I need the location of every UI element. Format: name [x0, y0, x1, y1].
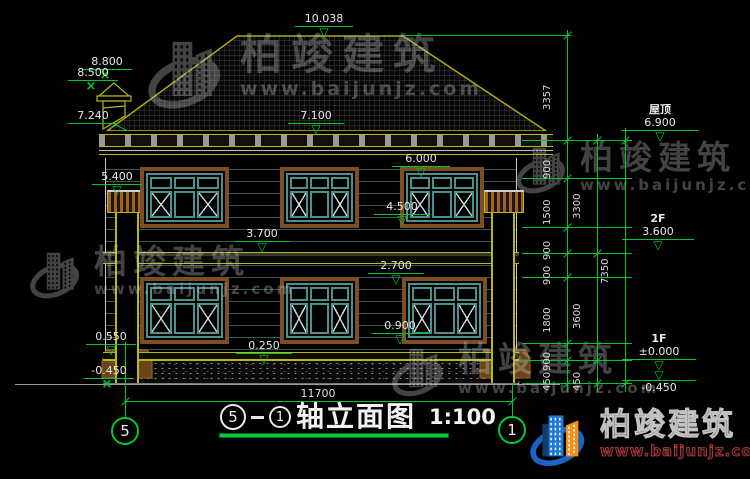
title-scale: 1:100 [429, 405, 496, 429]
elevation-value: 8.500 [68, 66, 118, 80]
level-link-line [403, 35, 571, 36]
dim-value: 1500 [542, 200, 553, 225]
elevation-marker: ▽ -0.450 [622, 370, 696, 395]
elevation-value: 4.500 [374, 200, 430, 214]
dim-value: 450 [542, 372, 553, 391]
dim-value: 900 [542, 352, 553, 371]
watermark: 柏竣建筑 www.baijunjz.com [146, 32, 482, 114]
dim-value: 450 [572, 372, 583, 391]
watermark-logo-icon [392, 342, 450, 400]
elevation-marker: 7.100 ▽ [288, 109, 344, 134]
elevation-marker: 0.550 ▽ [86, 330, 136, 355]
elevation-marker: 4.500 ▽ [374, 200, 430, 225]
elevation-marker: 屋顶 6.900 ▽ [622, 103, 698, 141]
elevation-marker: 2.700 ▽ [368, 259, 424, 284]
dim-value: 7350 [600, 259, 611, 284]
level-triangle-icon: ▽ [86, 345, 136, 355]
brand-name: 柏竣建筑 [600, 408, 750, 442]
dim-value: 3357 [542, 85, 553, 110]
elevation-marker: 10.038 ▽ [295, 12, 353, 37]
dim-value: 900 [542, 266, 553, 285]
elevation-marker: 7.240 [68, 109, 118, 124]
watermark-logo-icon [30, 244, 86, 304]
title-axis-circle-start: 5 [220, 404, 246, 430]
level-name: 2F [622, 212, 694, 225]
elevation-marker: 6.000 ▽ [392, 152, 450, 177]
elevation-value: 10.038 [295, 12, 353, 26]
eave-dentils [99, 135, 553, 147]
elevation-value: 7.240 [68, 109, 118, 123]
watermark-brand: 柏竣建筑 [580, 140, 750, 176]
elevation-value: -0.450 [84, 364, 134, 378]
level-link-line [522, 253, 632, 254]
cross-icon: × [68, 81, 118, 92]
level-link-line [522, 360, 632, 361]
level-triangle-icon: ▽ [368, 274, 424, 284]
level-name: 1F [622, 332, 696, 345]
dim-value: 900 [542, 160, 553, 179]
elevation-value: 2.700 [368, 259, 424, 273]
elevation-drawing-canvas: 柏竣建筑 www.baijunjz.com 柏竣建筑 www.baijunjz.… [0, 0, 750, 479]
level-triangle-icon: ▽ [622, 131, 698, 141]
dim-value: 1800 [542, 308, 553, 333]
watermark: 柏竣建筑 www.baijunjz.com [392, 342, 659, 400]
elevation-marker: -0.450 × [84, 364, 134, 390]
watermark-logo-icon [146, 32, 232, 114]
axis-bubble-1: 1 [498, 416, 526, 444]
elevation-marker: 8.500 × [68, 66, 118, 92]
watermark-site: www.baijunjz.com [240, 78, 482, 100]
title-text: 轴立面图 [296, 402, 416, 432]
elevation-value: 6.000 [392, 152, 450, 166]
elevation-marker: 0.900 ▽ [372, 319, 428, 344]
eave-line [99, 151, 553, 155]
elevation-value: -0.450 [622, 381, 696, 395]
level-link-line [522, 178, 632, 179]
level-triangle-icon: ▽ [392, 167, 450, 177]
brand-logo: 柏竣建筑 www.baijunjz.com [528, 408, 750, 470]
dim-value: 900 [542, 241, 553, 260]
window-2f-1 [140, 167, 229, 228]
axis-bubble-5: 5 [111, 417, 139, 445]
elevation-marker: 5.400 ▽ [92, 170, 142, 195]
window-2f-2 [280, 167, 359, 228]
title-dash [251, 416, 264, 419]
level-line [68, 123, 118, 124]
brand-site: www.baijunjz.com [600, 442, 750, 460]
level-triangle-icon: ▽ [295, 27, 353, 37]
dim-chain-line [567, 30, 568, 392]
cross-icon: × [84, 379, 134, 390]
drawing-title: 5 1 轴立面图 1:100 [220, 402, 496, 432]
level-link-line [522, 140, 632, 141]
level-triangle-icon: ▽ [92, 185, 142, 195]
level-link-line [522, 277, 632, 278]
level-triangle-icon: ▽ [288, 124, 344, 134]
elevation-value: 5.400 [92, 170, 142, 184]
level-triangle-icon: ▽ [234, 242, 290, 252]
elevation-value: 6.900 [622, 116, 698, 130]
watermark-brand: 柏竣建筑 [240, 32, 482, 78]
level-link-line [522, 343, 632, 344]
dim-chain-line [597, 134, 598, 392]
brand-logo-icon [528, 408, 594, 470]
level-name: 屋顶 [622, 103, 698, 116]
dim-value: 3300 [572, 194, 583, 219]
level-link-line [522, 227, 632, 228]
level-triangle-icon: ▽ [372, 334, 428, 344]
elevation-marker: 2F 3.600 ▽ [622, 212, 694, 250]
elevation-value: 3.700 [234, 227, 290, 241]
level-triangle-icon: ▽ [622, 240, 694, 250]
title-underline [219, 433, 449, 438]
elevation-value: 0.900 [372, 319, 428, 333]
elevation-value: 7.100 [288, 109, 344, 123]
level-triangle-icon: ▽ [236, 354, 292, 364]
bottom-dim-value: 11700 [280, 387, 356, 400]
level-triangle-icon: ▽ [622, 370, 696, 380]
roof-eave-band [99, 131, 553, 158]
elevation-value: 0.250 [236, 339, 292, 353]
watermark-site: www.baijunjz.com [94, 280, 295, 298]
dim-value: 3600 [572, 304, 583, 329]
elevation-value: ±0.000 [622, 345, 696, 359]
title-axis-circle-end: 1 [269, 406, 291, 428]
level-triangle-icon: ▽ [374, 215, 430, 225]
elevation-value: 0.550 [86, 330, 136, 344]
elevation-marker: 3.700 ▽ [234, 227, 290, 252]
elevation-marker: 0.250 ▽ [236, 339, 292, 364]
elevation-marker: 1F ±0.000 ▽ [622, 332, 696, 370]
elevation-value: 3.600 [622, 225, 694, 239]
watermark: 柏竣建筑 www.baijunjz.com [30, 244, 295, 304]
